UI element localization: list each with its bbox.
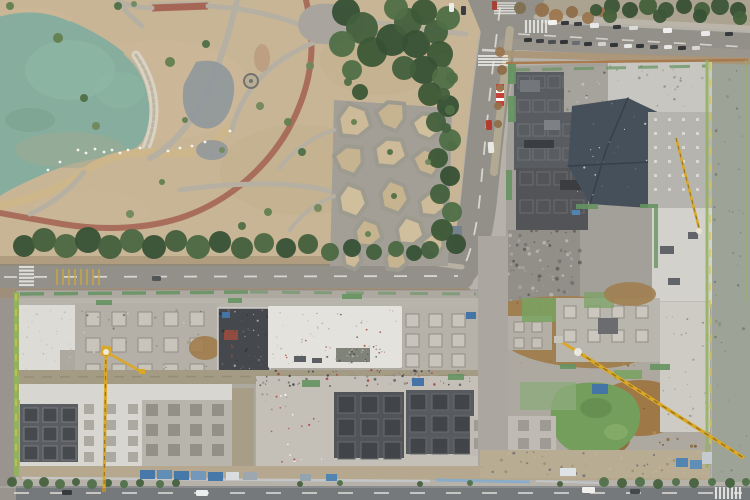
aerial-construction-site-photo <box>0 0 750 500</box>
haze-overlay <box>0 0 750 500</box>
aerial-photo-stage <box>0 0 750 500</box>
atmosphere <box>0 0 750 500</box>
